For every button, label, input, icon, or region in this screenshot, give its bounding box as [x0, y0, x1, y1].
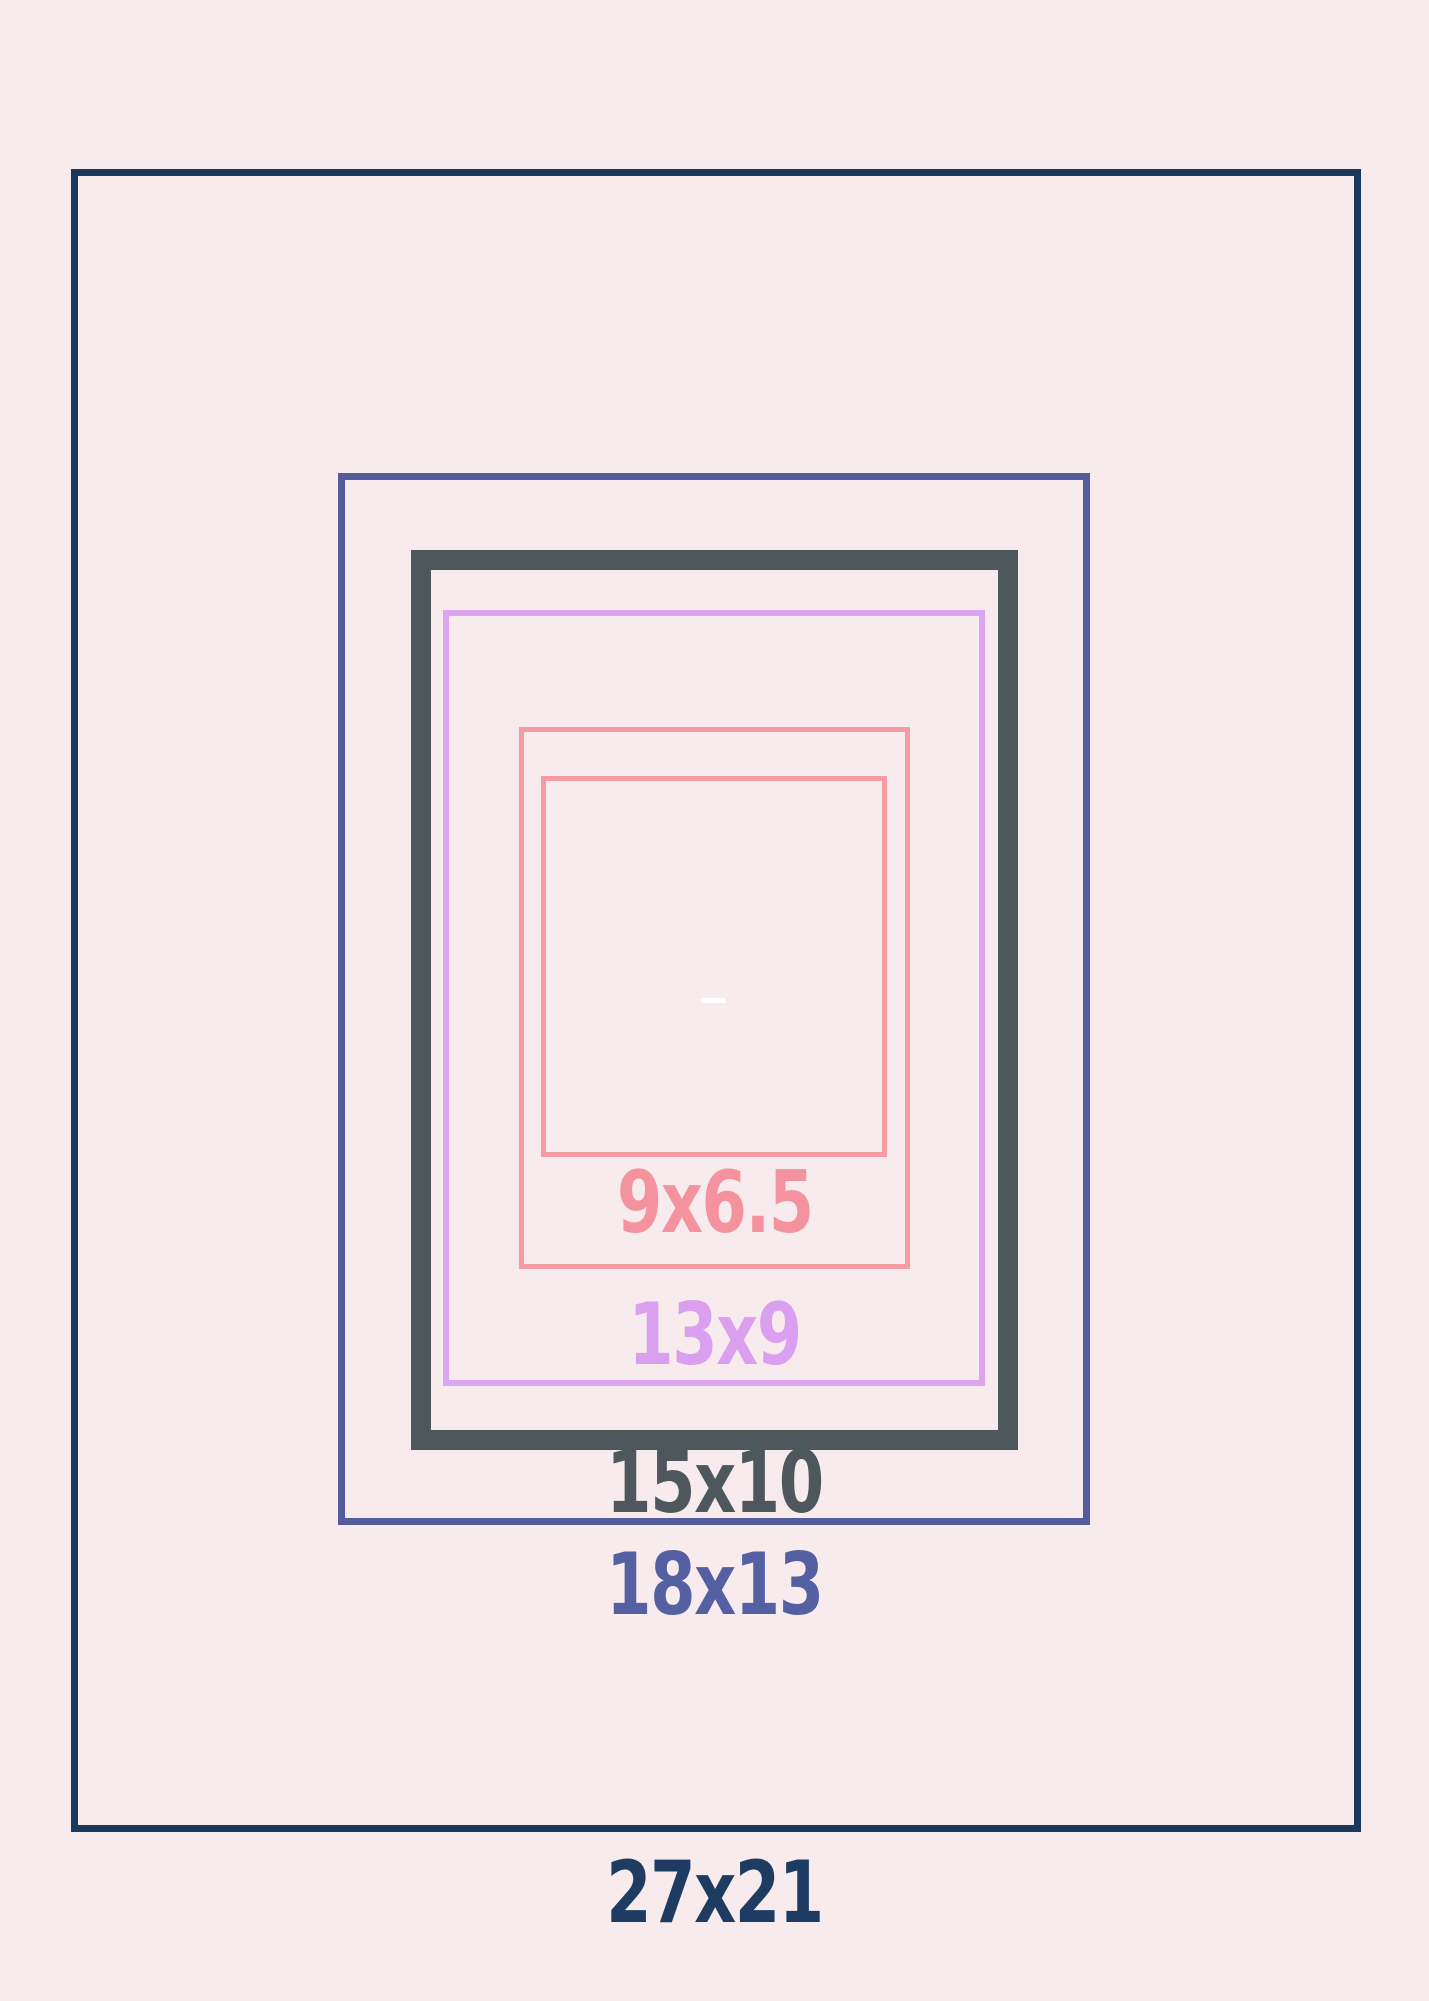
size-label-9x6-5: 9x6.5 [0, 1160, 1429, 1246]
center-dash-marker [701, 998, 726, 1003]
size-label-27x21: 27x21 [0, 1850, 1429, 1936]
frame-9x6-5-inner-rect [541, 776, 887, 1157]
size-label-27x21-text: 27x21 [606, 1850, 822, 1936]
size-label-18x13-text: 18x13 [606, 1542, 822, 1628]
size-label-9x6-5-text: 9x6.5 [617, 1160, 813, 1246]
size-label-18x13: 18x13 [0, 1542, 1429, 1628]
size-label-13x9-text: 13x9 [628, 1292, 801, 1378]
size-label-13x9: 13x9 [0, 1292, 1429, 1378]
size-comparison-diagram: 9x6.5 13x9 15x10 18x13 27x21 [0, 0, 1429, 2001]
size-label-15x10: 15x10 [0, 1440, 1429, 1526]
size-label-15x10-text: 15x10 [606, 1440, 822, 1526]
